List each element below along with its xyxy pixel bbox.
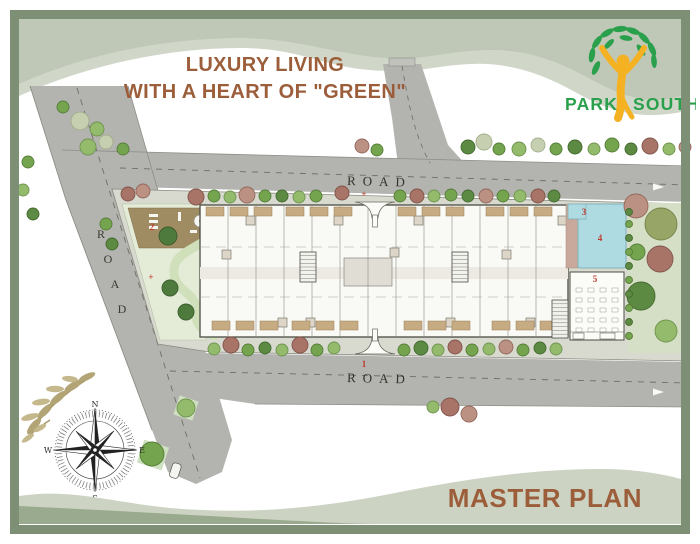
tree-icon: [588, 143, 600, 155]
kids-pool-marker: 3: [582, 207, 587, 217]
tree-icon: [71, 112, 89, 130]
tree-icon: [259, 190, 271, 202]
tree-icon: [534, 342, 546, 354]
tree-icon: [355, 139, 369, 153]
tree-icon: [461, 406, 477, 422]
tree-icon: [90, 122, 104, 136]
tree-icon: [512, 142, 526, 156]
tree-icon: [550, 143, 562, 155]
tree-icon: [310, 190, 322, 202]
tree-icon: [479, 189, 493, 203]
tree-icon: [466, 344, 478, 356]
tree-icon: [626, 235, 633, 242]
lawn-marker: +: [148, 272, 153, 282]
tree-icon: [645, 208, 677, 240]
brand-logo: PARK SOUTH: [556, 22, 696, 122]
tree-icon: [162, 280, 178, 296]
tree-icon: [371, 144, 383, 156]
tree-icon: [398, 344, 410, 356]
tree-icon: [394, 190, 406, 202]
headline: LUXURY LIVING WITH A HEART OF "GREEN": [120, 52, 410, 106]
tree-icon: [483, 343, 495, 355]
tree-icon: [445, 189, 457, 201]
hall-marker: 5: [593, 274, 598, 284]
top-road-label: ROAD: [347, 173, 412, 190]
compass-rose: N E S W: [44, 400, 145, 503]
tree-icon: [647, 246, 673, 272]
main-building: [200, 205, 568, 337]
tree-icon: [121, 187, 135, 201]
tree-icon: [497, 190, 509, 202]
tree-icon: [476, 134, 492, 150]
tree-icon: [427, 401, 439, 413]
bottom-road-label: ROAD: [347, 370, 412, 386]
tree-icon: [292, 337, 308, 353]
headline-line1: LUXURY LIVING: [120, 52, 410, 79]
tree-icon: [22, 156, 34, 168]
master-plan-poster: ROAD ROAD R O A D + 1 2 + 3 4 5 N E S W: [0, 0, 700, 544]
tree-icon: [293, 191, 305, 203]
tree-icon: [311, 344, 323, 356]
compass-west-label: W: [44, 446, 53, 455]
left-road-letter: R: [97, 227, 105, 241]
tree-icon: [642, 138, 658, 154]
tree-icon: [441, 398, 459, 416]
tree-icon: [117, 143, 129, 155]
tree-icon: [626, 319, 633, 326]
brand-name-left: PARK: [565, 94, 618, 114]
tree-icon: [224, 191, 236, 203]
tree-icon: [223, 337, 239, 353]
tree-icon: [626, 305, 633, 312]
brand-name-right: SOUTH: [633, 94, 696, 114]
tree-icon: [80, 139, 96, 155]
tree-icon: [432, 344, 444, 356]
pool-marker: 4: [598, 233, 603, 243]
tree-icon: [208, 343, 220, 355]
tree-icon: [605, 138, 619, 152]
tree-icon: [626, 277, 633, 284]
top-gate-marker: +: [361, 189, 366, 199]
logo-person-head: [617, 55, 630, 68]
master-plan-label: MASTER PLAN: [438, 483, 652, 514]
tree-icon: [99, 135, 113, 149]
tree-icon: [679, 141, 691, 153]
tree-icon: [276, 344, 288, 356]
left-road-letter: O: [104, 252, 113, 266]
tree-icon: [499, 340, 513, 354]
tree-icon: [568, 140, 582, 154]
tree-icon: [448, 340, 462, 354]
tree-icon: [177, 399, 195, 417]
main-gate-marker: 1: [362, 359, 367, 369]
tree-icon: [27, 208, 39, 220]
tree-icon: [663, 143, 675, 155]
tree-icon: [493, 143, 505, 155]
bottom-road: [150, 352, 689, 407]
tree-icon: [106, 238, 118, 250]
tree-icon: [514, 190, 526, 202]
tree-icon: [626, 333, 633, 340]
tree-icon: [276, 190, 288, 202]
tree-icon: [625, 143, 637, 155]
tree-icon: [531, 138, 545, 152]
deck-marker: 2: [150, 222, 155, 232]
tree-icon: [242, 344, 254, 356]
tree-icon: [531, 189, 545, 203]
tree-icon: [328, 342, 340, 354]
tree-icon: [548, 190, 560, 202]
compass-east-label: E: [139, 446, 145, 455]
tree-icon: [414, 341, 428, 355]
olive-branch-icon: [20, 370, 96, 444]
left-road-letter: D: [118, 302, 127, 316]
left-road-letter: A: [111, 277, 120, 291]
tree-icon: [655, 320, 677, 342]
headline-line2: WITH A HEART OF "GREEN": [120, 79, 410, 106]
tree-icon: [136, 184, 150, 198]
tree-icon: [259, 342, 271, 354]
tree-icon: [461, 140, 475, 154]
tree-icon: [335, 186, 349, 200]
tree-icon: [410, 189, 424, 203]
tree-icon: [208, 190, 220, 202]
tree-icon: [550, 343, 562, 355]
compass-north-label: N: [92, 400, 99, 409]
tree-icon: [517, 344, 529, 356]
tree-icon: [626, 263, 633, 270]
tree-icon: [239, 187, 255, 203]
tree-icon: [57, 101, 69, 113]
tree-icon: [626, 249, 633, 256]
tree-icon: [462, 190, 474, 202]
tree-icon: [17, 184, 29, 196]
tree-icon: [428, 190, 440, 202]
tree-icon: [626, 209, 633, 216]
tree-icon: [188, 189, 204, 205]
tree-icon: [159, 227, 177, 245]
tree-icon: [178, 304, 194, 320]
tree-icon: [626, 291, 633, 298]
tree-icon: [626, 221, 633, 228]
